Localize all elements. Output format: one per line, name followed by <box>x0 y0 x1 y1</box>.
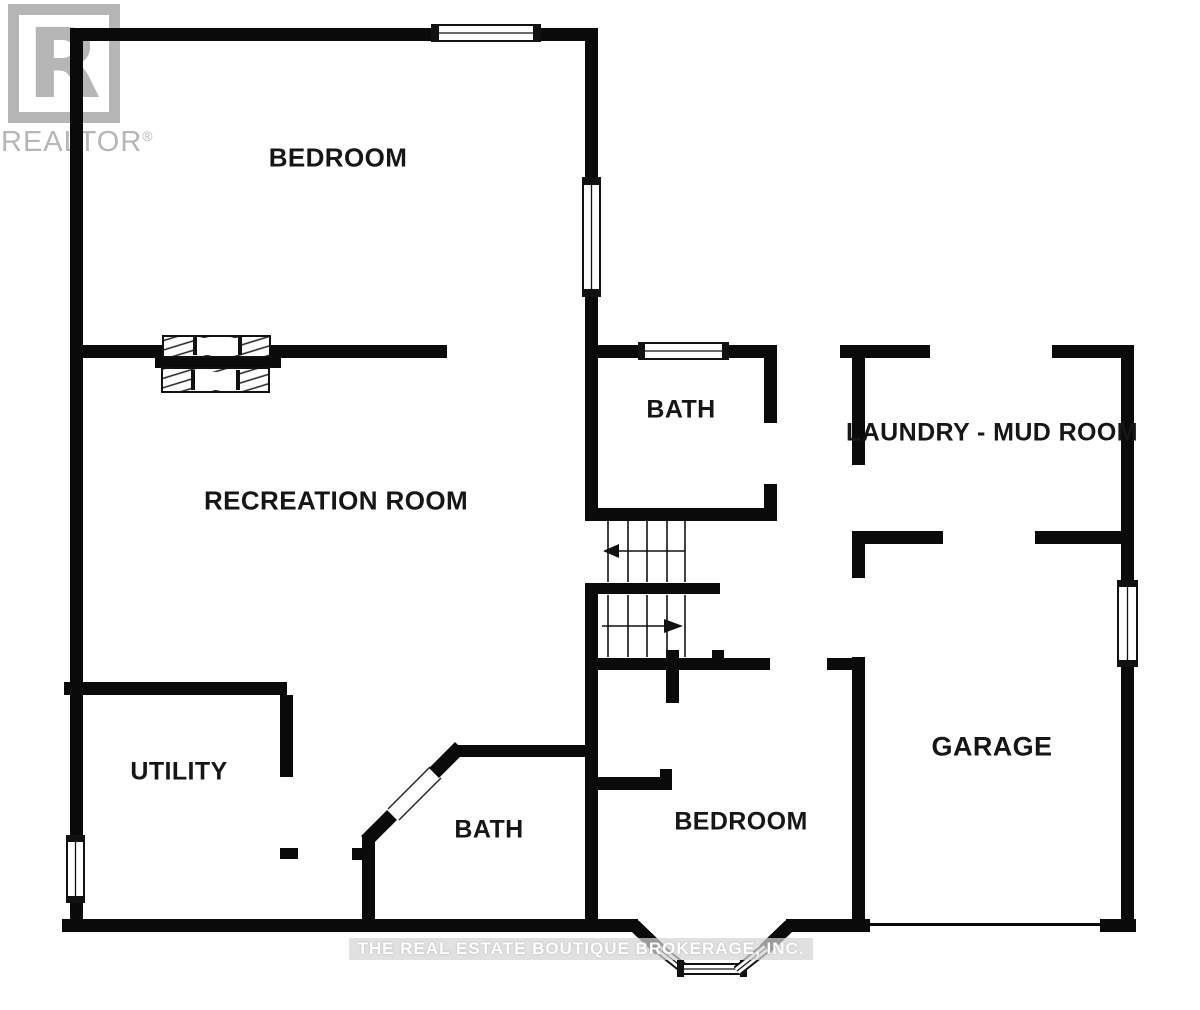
room-label-utility: UTILITY <box>130 758 227 787</box>
room-label-bath-upper: BATH <box>646 396 715 425</box>
room-label-bath-lower: BATH <box>454 816 523 845</box>
room-label-recreation-room: RECREATION ROOM <box>204 486 468 517</box>
stair-arrow-left-icon <box>603 544 619 558</box>
floor-plan-canvas <box>0 0 1200 1010</box>
room-label-garage: GARAGE <box>932 732 1053 763</box>
room-label-bedroom-upper: BEDROOM <box>269 143 408 174</box>
brokerage-watermark: THE REAL ESTATE BOUTIQUE BROKERAGE, INC. <box>349 938 813 960</box>
walls <box>62 28 1136 932</box>
floor-plan-screenshot: R REALTOR® <box>0 0 1200 1010</box>
room-label-bedroom-lower: BEDROOM <box>674 808 807 837</box>
stair-arrow-right-icon <box>664 619 683 633</box>
angled-bath-wall <box>366 747 460 841</box>
room-label-laundry-mud-room: LAUNDRY - MUD ROOM <box>846 419 1138 448</box>
